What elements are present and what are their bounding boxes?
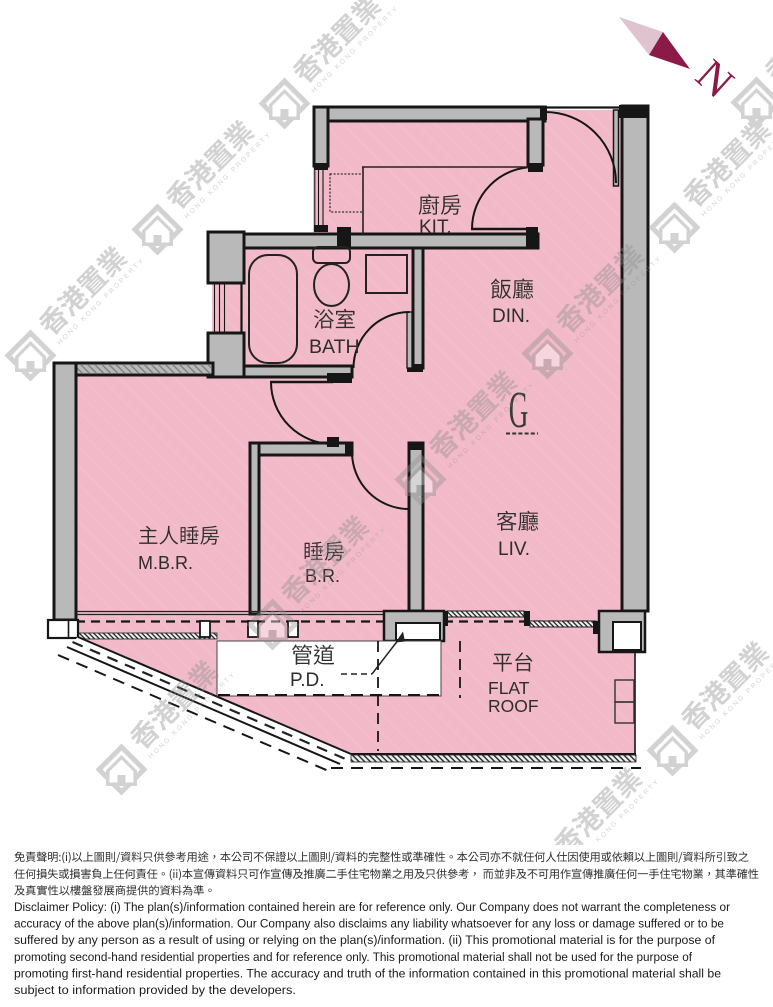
svg-text:subject to information provide: subject to information provided by the d… (14, 983, 296, 997)
svg-text:LIV.: LIV. (498, 539, 530, 560)
svg-text:BATH: BATH (309, 336, 360, 358)
svg-text:DIN.: DIN. (492, 306, 530, 327)
svg-text:FLAT: FLAT (488, 678, 530, 698)
svg-text:Disclaimer Policy: (i) The pla: Disclaimer Policy: (i) The plan(s)/infor… (14, 900, 730, 914)
svg-text:KIT.: KIT. (419, 217, 452, 238)
svg-text:P.D.: P.D. (290, 670, 325, 691)
svg-text:M.B.R.: M.B.R. (138, 553, 193, 573)
svg-text:accuracy of the above plan(s)/: accuracy of the above plan(s)/informatio… (14, 917, 724, 931)
svg-text:promoting second-hand resident: promoting second-hand residential proper… (14, 950, 693, 964)
svg-text:suffered by any person as a re: suffered by any person as a result of us… (14, 933, 716, 947)
svg-text:promoting first-hand residenti: promoting first-hand residential propert… (14, 966, 721, 980)
svg-text:ROOF: ROOF (488, 696, 539, 716)
